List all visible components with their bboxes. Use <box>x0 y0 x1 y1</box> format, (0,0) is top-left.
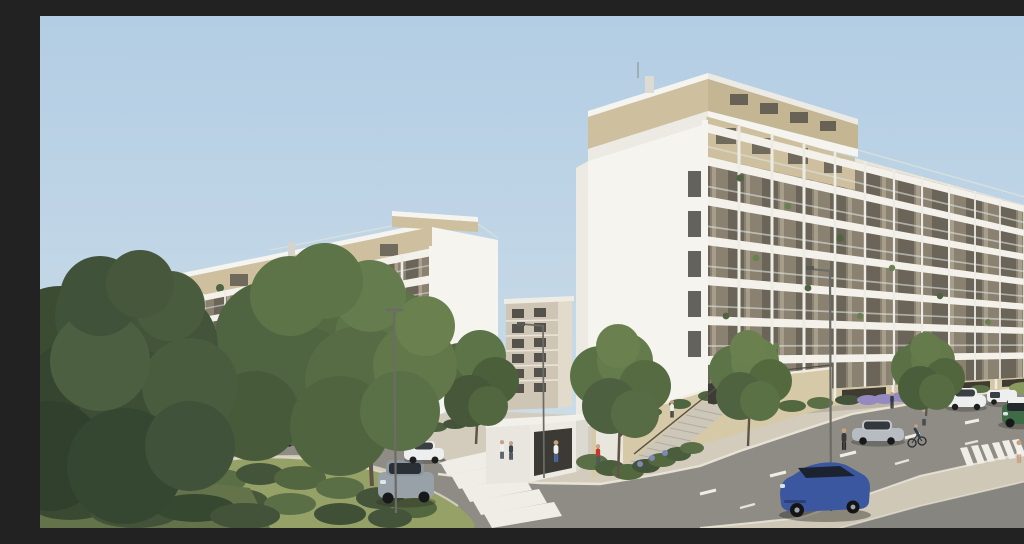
render-canvas <box>40 16 1024 528</box>
garage-opening <box>534 428 572 476</box>
architectural-rendering: New-build residential complex — exterior… <box>40 16 1024 528</box>
corner-pier <box>702 120 708 398</box>
chimney <box>288 242 295 256</box>
chimney <box>645 76 654 93</box>
